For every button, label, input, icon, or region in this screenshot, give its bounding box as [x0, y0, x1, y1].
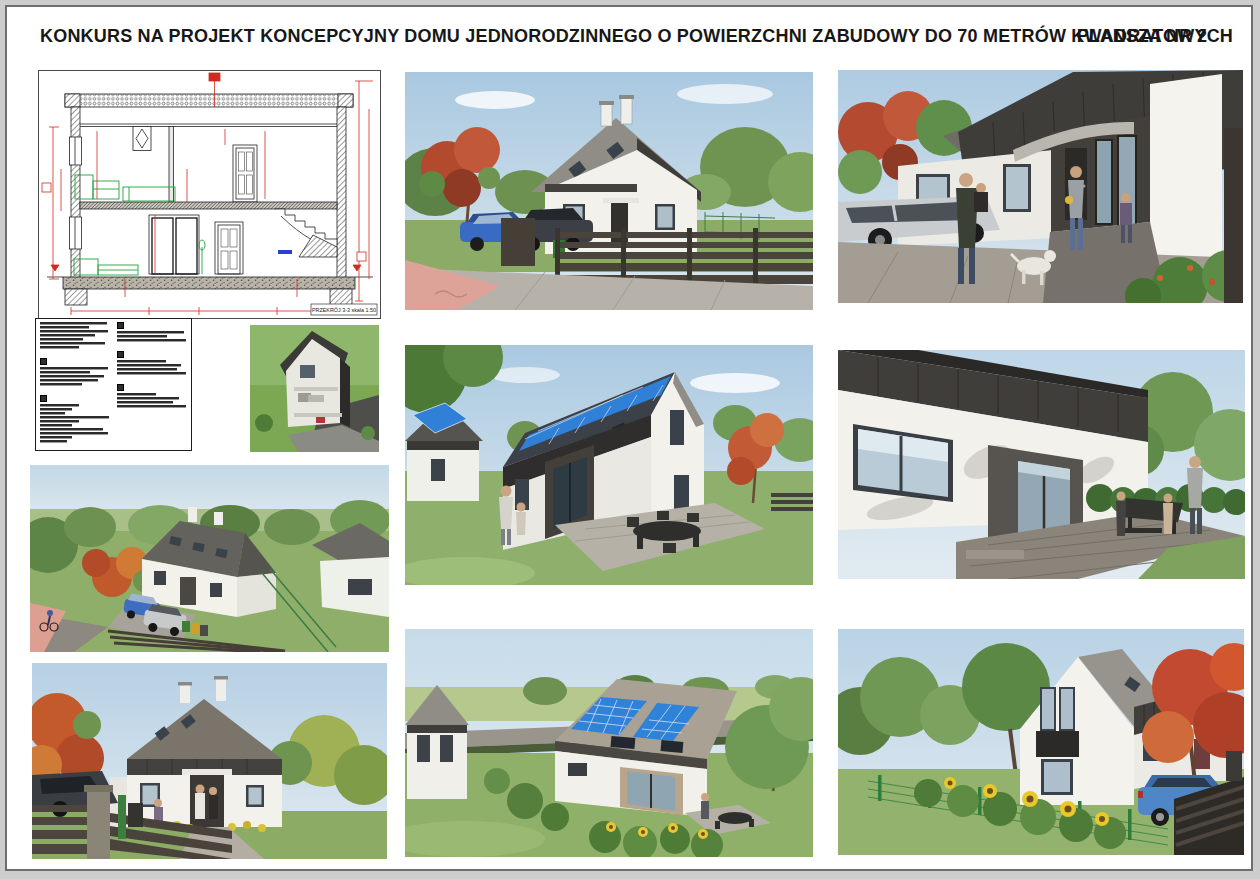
render-street-front-view: [405, 72, 813, 310]
legend-text-line: [40, 346, 79, 349]
render-aerial-street-view: [30, 465, 389, 652]
legend-text-line: [117, 401, 173, 404]
legend-text-line: [40, 420, 79, 423]
legend-text-line: [40, 371, 90, 374]
legend-block: [117, 351, 187, 376]
legend-column: [117, 322, 187, 447]
legend-text-line: [117, 368, 177, 371]
legend-item-number-box: [40, 358, 47, 365]
legend-text-line: [40, 432, 108, 435]
legend-panel: [35, 318, 192, 451]
blue-annotation: [278, 250, 292, 254]
legend-text-line: [40, 424, 72, 427]
section-caption: PRZEKRÓJ 3-3 skala 1:50: [311, 304, 377, 315]
neighbor-fence: [1224, 128, 1243, 303]
render-garden-solar-view: [405, 345, 813, 585]
legend-text-line: [117, 393, 156, 396]
legend-text-line: [40, 322, 107, 325]
legend-text-line: [117, 360, 166, 363]
legend-item-number-box: [117, 322, 124, 329]
legend-column: [40, 322, 110, 447]
legend-text-line: [40, 367, 108, 370]
legend-text-line: [117, 405, 186, 408]
legend-text-line: [40, 326, 89, 329]
rear-fence: [771, 493, 813, 511]
legend-block: [40, 322, 110, 350]
legend-block: [117, 322, 187, 343]
legend-block: [40, 395, 110, 444]
legend-text-line: [40, 428, 103, 431]
legend-text-line: [40, 412, 65, 415]
render-side-garden-view: [838, 629, 1244, 855]
legend-block: [40, 358, 110, 387]
legend-item-number-box: [117, 351, 124, 358]
competition-board: KONKURS NA PROJEKT KONCEPCYJNY DOMU JEDN…: [5, 5, 1253, 871]
outdoor-table: [1118, 498, 1183, 534]
legend-text-line: [40, 416, 109, 419]
svg-text:PRZEKRÓJ 3-3 skala 1:50: PRZEKRÓJ 3-3 skala 1:50: [312, 307, 376, 313]
page-title: KONKURS NA PROJEKT KONCEPCYJNY DOMU JEDN…: [40, 26, 1233, 47]
cutaway-render: [250, 325, 379, 452]
legend-text-line: [40, 408, 72, 411]
legend-text-line: [40, 440, 67, 443]
legend-text-line: [40, 334, 95, 337]
legend-text-line: [40, 338, 83, 341]
legend-text-line: [40, 330, 108, 333]
legend-text-line: [117, 364, 181, 367]
render-terrace-view: [838, 350, 1245, 579]
legend-text-line: [40, 379, 98, 382]
competition-board-page: { "header": { "title": "KONKURS NA PROJE…: [0, 0, 1260, 879]
legend-text-line: [117, 339, 186, 342]
render-driveway-view: [32, 663, 387, 859]
legend-text-line: [40, 383, 82, 386]
dining-table: [633, 521, 701, 541]
render-entrance-view: [838, 70, 1243, 303]
legend-text-line: [40, 375, 104, 378]
legend-text-line: [117, 331, 184, 334]
legend-text-line: [40, 436, 72, 439]
legend-block: [117, 384, 187, 409]
legend-text-line: [40, 342, 105, 345]
legend-item-number-box: [40, 395, 47, 402]
legend-text-line: [40, 404, 79, 407]
legend-text-line: [117, 335, 167, 338]
cad-section-drawing: PRZEKRÓJ 3-3 skala 1:50: [37, 69, 382, 320]
board-number-label: PLANSZA NR 2: [1077, 26, 1207, 47]
legend-text-line: [117, 397, 179, 400]
legend-item-number-box: [117, 384, 124, 391]
legend-text-line: [117, 372, 186, 375]
render-aerial-garden-view: [405, 629, 813, 857]
